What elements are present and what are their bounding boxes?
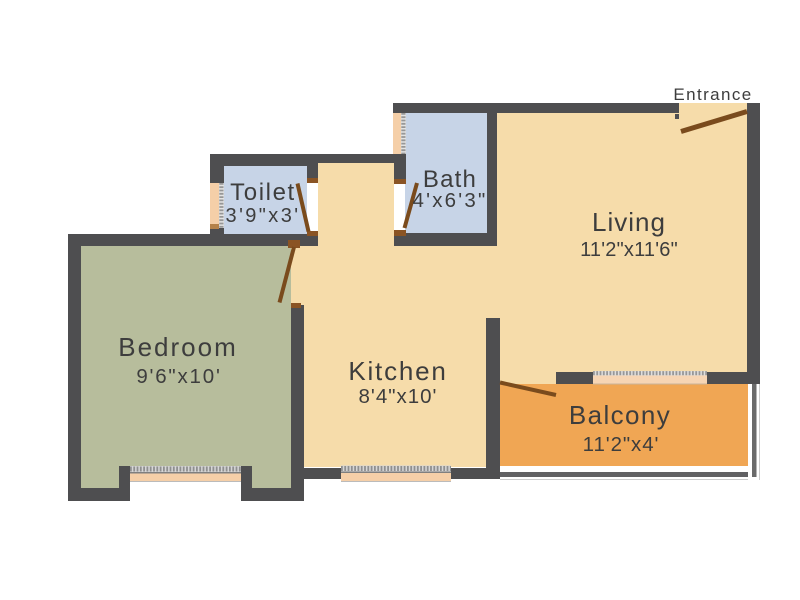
svg-text:9'6"x10': 9'6"x10' bbox=[136, 365, 221, 388]
svg-text:Balcony: Balcony bbox=[569, 400, 671, 430]
svg-text:Living: Living bbox=[592, 207, 666, 237]
svg-text:Entrance: Entrance bbox=[673, 85, 752, 104]
svg-text:11'2"x4': 11'2"x4' bbox=[583, 433, 660, 456]
svg-text:8'4"x10': 8'4"x10' bbox=[359, 385, 438, 408]
svg-text:3'9"x3': 3'9"x3' bbox=[226, 205, 301, 227]
svg-text:4'x6'3": 4'x6'3" bbox=[413, 189, 488, 212]
svg-text:Toilet: Toilet bbox=[230, 179, 296, 206]
svg-text:11'2"x11'6": 11'2"x11'6" bbox=[580, 239, 678, 261]
svg-text:Kitchen: Kitchen bbox=[348, 356, 447, 386]
svg-text:Bedroom: Bedroom bbox=[118, 332, 238, 362]
